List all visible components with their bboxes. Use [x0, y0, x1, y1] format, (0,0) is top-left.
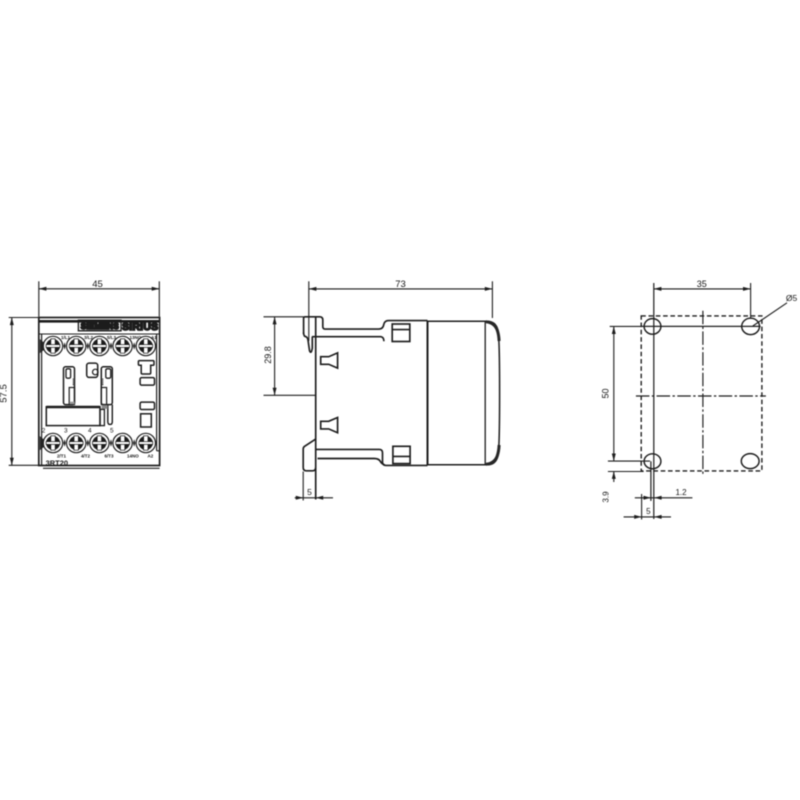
svg-text:3.9: 3.9: [602, 491, 611, 503]
svg-text:50: 50: [601, 388, 611, 398]
svg-text:14NO: 14NO: [127, 454, 139, 459]
svg-text:5: 5: [110, 427, 114, 434]
svg-text:3: 3: [64, 427, 68, 434]
svg-text:Ø5: Ø5: [786, 293, 798, 303]
svg-text:57.5: 57.5: [0, 384, 10, 403]
svg-text:SIRIUS: SIRIUS: [122, 322, 158, 333]
svg-text:6/T3: 6/T3: [105, 454, 115, 459]
svg-text:3/L2: 3/L2: [84, 335, 94, 340]
svg-text:5: 5: [646, 507, 651, 516]
svg-text:4/T2: 4/T2: [81, 454, 91, 459]
svg-text:1.2: 1.2: [675, 488, 687, 497]
svg-text:1/L1: 1/L1: [61, 335, 71, 340]
svg-text:4: 4: [88, 427, 92, 434]
svg-text:SIEMENS: SIEMENS: [81, 322, 120, 331]
svg-text:5: 5: [307, 487, 312, 497]
svg-text:2: 2: [42, 427, 46, 434]
svg-text:45: 45: [92, 279, 103, 290]
svg-text:A1: A1: [151, 335, 157, 340]
svg-text:5/L3: 5/L3: [107, 335, 117, 340]
svg-text:13NO: 13NO: [130, 335, 142, 340]
svg-text:73: 73: [395, 279, 406, 290]
svg-text:35: 35: [697, 279, 707, 289]
svg-text:3RT20: 3RT20: [46, 459, 69, 468]
svg-text:29.8: 29.8: [263, 346, 273, 364]
svg-text:A2: A2: [148, 454, 154, 459]
